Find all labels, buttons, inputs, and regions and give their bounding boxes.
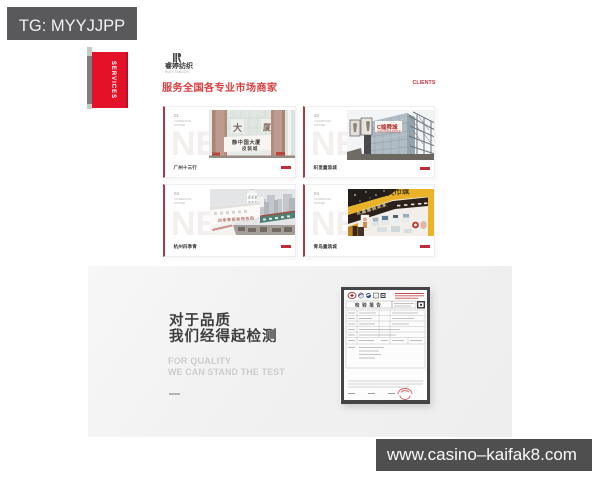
svg-text:静中国大厦: 静中国大厦 — [232, 138, 261, 146]
svg-text:大: 大 — [233, 122, 242, 133]
svg-text:厦: 厦 — [263, 122, 272, 132]
svg-text:检验报告: 检验报告 — [355, 302, 383, 309]
svg-text:仔某小童装某某某某某: 仔某小童装某某某某某 — [377, 129, 402, 133]
svg-text:皮装城: 皮装城 — [242, 145, 258, 152]
